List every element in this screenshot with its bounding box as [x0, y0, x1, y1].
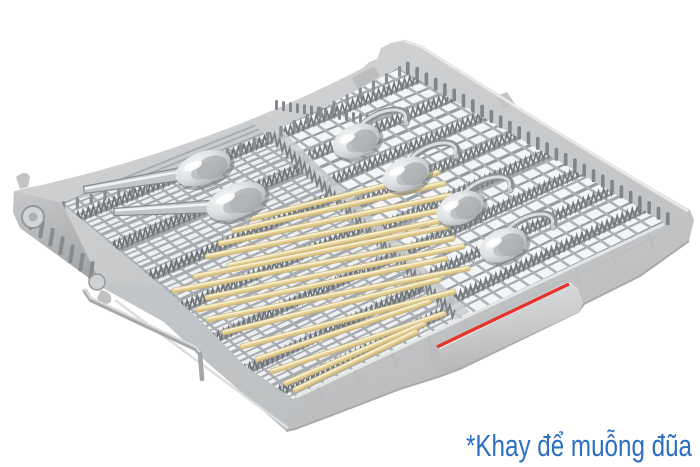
svg-text:*Khay để muỗng đũa: *Khay để muỗng đũa: [466, 428, 693, 463]
